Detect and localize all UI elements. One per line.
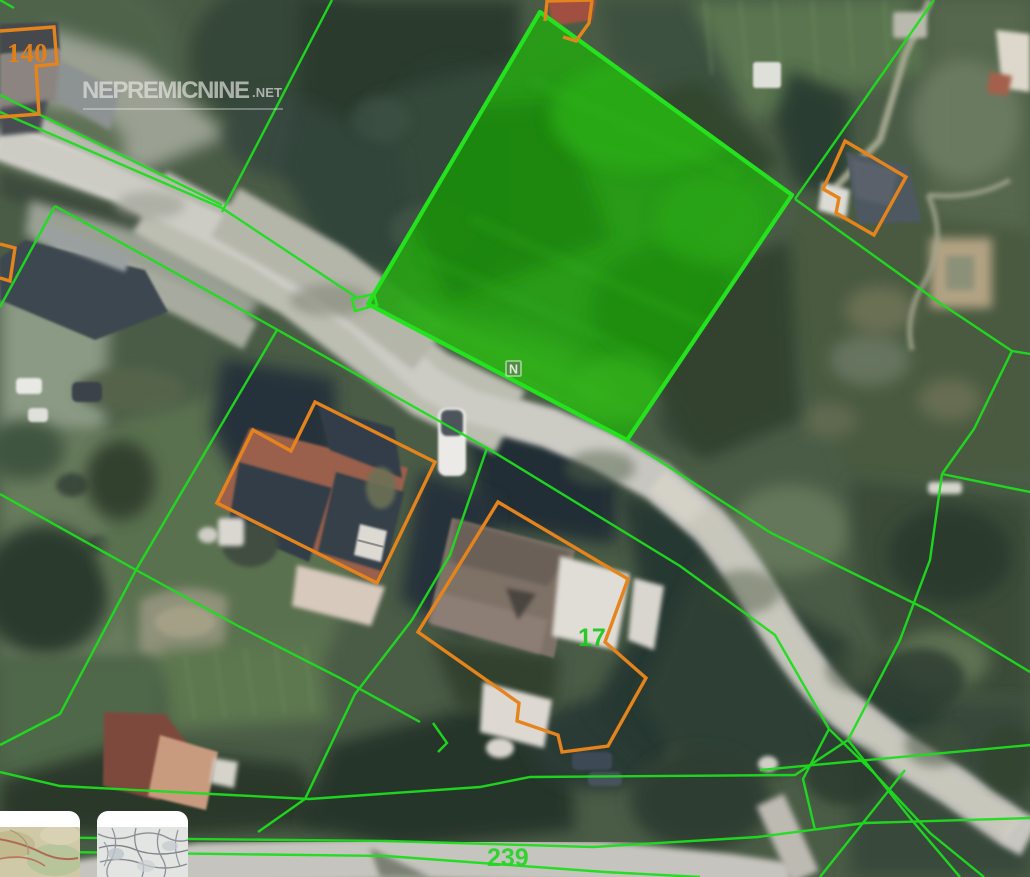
svg-text:17: 17 [578, 624, 606, 652]
svg-text:140: 140 [7, 38, 48, 68]
svg-text:.NET: .NET [252, 85, 282, 100]
svg-text:N: N [509, 363, 518, 377]
svg-text:239: 239 [487, 844, 529, 872]
svg-text:NEPREMICNINE: NEPREMICNINE [82, 77, 250, 104]
